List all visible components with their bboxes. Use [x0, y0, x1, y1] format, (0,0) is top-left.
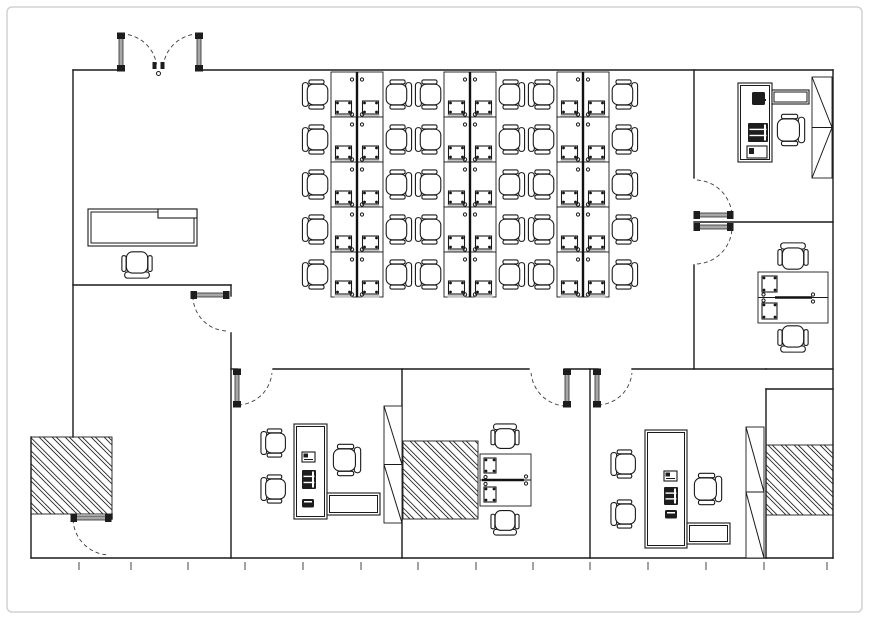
- chair-armrest: [503, 195, 518, 199]
- chair-seat: [612, 219, 633, 240]
- corner-dot: [476, 102, 479, 105]
- corner-dot: [336, 237, 339, 240]
- corner-dot: [375, 147, 378, 150]
- chair-seat: [420, 129, 441, 150]
- corner-dot: [375, 156, 378, 159]
- door-stop: [157, 72, 161, 76]
- chair-armrest: [267, 429, 282, 433]
- corner-dot: [589, 192, 592, 195]
- corner-dot: [348, 282, 351, 285]
- chair-seat: [307, 264, 328, 285]
- chair-seat: [386, 264, 407, 285]
- corner-dot: [488, 111, 491, 114]
- chair-armrest: [503, 285, 518, 289]
- corner-dot: [493, 499, 496, 502]
- task-chair: [612, 170, 637, 199]
- corner-dot: [449, 282, 452, 285]
- task-chair: [778, 326, 808, 352]
- paper-tray-detail: [749, 148, 754, 154]
- door-latch: [153, 62, 157, 69]
- chair-seat: [612, 264, 633, 285]
- corner-dot: [363, 147, 366, 150]
- phone-detail: [667, 512, 675, 514]
- corner-dot: [449, 102, 452, 105]
- chair-seat: [499, 219, 520, 240]
- corner-dot: [574, 282, 577, 285]
- chair-armrest: [535, 260, 550, 264]
- corner-dot: [375, 291, 378, 294]
- chair-seat: [266, 433, 286, 453]
- chair-armrest: [390, 105, 405, 109]
- door-leaf: [565, 370, 569, 406]
- corner-dot: [336, 102, 339, 105]
- chair-armrest: [617, 500, 632, 504]
- entry-door-center-hardware: [153, 62, 165, 76]
- corner-dot: [562, 111, 565, 114]
- hatch-line: [104, 437, 181, 514]
- corner-dot: [562, 147, 565, 150]
- task-chair: [499, 170, 524, 199]
- corner-dot: [601, 147, 604, 150]
- desk-edge-shade: [362, 295, 380, 298]
- chair-armrest: [503, 150, 518, 154]
- corner-dot: [601, 111, 604, 114]
- corner-dot: [488, 246, 491, 249]
- chair-armrest: [535, 170, 550, 174]
- corner-dot: [449, 111, 452, 114]
- chair-armrest: [535, 150, 550, 154]
- chair-seat: [533, 129, 554, 150]
- corner-dot: [574, 192, 577, 195]
- corner-dot: [348, 102, 351, 105]
- corner-dot: [589, 282, 592, 285]
- task-chair: [528, 170, 553, 199]
- door-swing-arc: [696, 180, 732, 214]
- chair-armrest: [503, 105, 518, 109]
- corner-dot: [574, 147, 577, 150]
- corner-dot: [363, 282, 366, 285]
- computer-detail: [750, 129, 767, 130]
- chair-armrest: [535, 285, 550, 289]
- desk-edge-shade: [448, 295, 466, 298]
- chair-armrest: [617, 524, 632, 528]
- hatch-line: [121, 437, 198, 514]
- corner-dot: [449, 192, 452, 195]
- door-hinge-cap: [195, 65, 203, 72]
- chair-armrest: [422, 150, 437, 154]
- corner-dot: [562, 156, 565, 159]
- chair-armrest: [309, 125, 324, 129]
- corner-dot: [774, 304, 777, 307]
- chair-seat: [307, 219, 328, 240]
- office-ne: [738, 83, 809, 162]
- chair-armrest: [148, 256, 152, 272]
- task-chair: [302, 260, 327, 289]
- reception-chair: [122, 252, 152, 278]
- executive-office-c: [611, 430, 730, 548]
- chair-seat: [420, 174, 441, 195]
- chair-seat: [307, 84, 328, 105]
- corner-dot: [488, 282, 491, 285]
- sw-closet-door: [71, 514, 112, 555]
- chair-armrest: [309, 240, 324, 244]
- chair-armrest: [778, 250, 782, 266]
- door-hinge-cap: [233, 401, 241, 408]
- task-chair: [415, 260, 440, 289]
- door-latch: [161, 62, 165, 69]
- corner-dot: [449, 156, 452, 159]
- task-chair: [386, 170, 411, 199]
- door-hinge-cap: [71, 514, 78, 522]
- door-leaf: [197, 34, 201, 70]
- chair-armrest: [617, 474, 632, 478]
- workstation-bank-2: [415, 72, 524, 297]
- corner-dot: [601, 102, 604, 105]
- chair-armrest: [309, 150, 324, 154]
- corner-dot: [375, 246, 378, 249]
- door-hinge-cap: [233, 369, 241, 376]
- chair-armrest: [503, 80, 518, 84]
- corner-dot: [375, 237, 378, 240]
- office-b-door: [531, 369, 571, 408]
- folder-tab: [666, 473, 671, 477]
- chair-seat: [533, 264, 554, 285]
- corner-dot: [562, 102, 565, 105]
- chair-armrest: [267, 499, 282, 503]
- corner-dot: [336, 192, 339, 195]
- corner-dot: [763, 316, 766, 319]
- corner-dot: [493, 459, 496, 462]
- corner-dot: [774, 316, 777, 319]
- corner-dot: [336, 291, 339, 294]
- task-chair: [612, 260, 637, 289]
- door-hinge-cap: [563, 369, 571, 376]
- chair-seat: [499, 129, 520, 150]
- door-leaf: [595, 370, 599, 406]
- chair-armrest: [422, 105, 437, 109]
- chair-armrest: [422, 240, 437, 244]
- office-a-door: [233, 369, 272, 408]
- task-chair: [612, 125, 637, 154]
- door-hinge-cap: [593, 369, 601, 376]
- executive-chair: [777, 114, 804, 145]
- door-hinge-cap: [694, 223, 701, 231]
- phone-icon: [302, 499, 314, 508]
- chair-armrest: [122, 256, 126, 272]
- task-chair: [415, 125, 440, 154]
- door-swing-arc: [531, 373, 566, 406]
- guest-chair: [261, 429, 285, 457]
- corner-dot: [375, 111, 378, 114]
- chair-armrest: [804, 250, 808, 266]
- chair-armrest: [309, 215, 324, 219]
- chair-seat: [782, 248, 803, 269]
- door-swing-arc: [598, 373, 632, 405]
- chair-seat: [694, 478, 716, 500]
- task-chair: [302, 80, 327, 109]
- task-chair: [415, 170, 440, 199]
- executive-chair: [333, 444, 360, 475]
- chair-armrest: [781, 114, 797, 118]
- corner-dot: [488, 102, 491, 105]
- chair-armrest: [616, 260, 631, 264]
- door-swing-arc: [73, 519, 107, 555]
- guest-chair: [261, 475, 285, 503]
- door-swing-arc: [163, 34, 199, 64]
- corner-dot: [485, 470, 488, 473]
- folder-tab: [304, 454, 309, 458]
- chair-seat: [612, 174, 633, 195]
- corner-dot: [562, 237, 565, 240]
- corner-dot: [449, 291, 452, 294]
- chair-seat: [307, 129, 328, 150]
- corner-dot: [488, 147, 491, 150]
- chair-armrest: [616, 125, 631, 129]
- door-hinge-cap: [727, 223, 734, 231]
- corner-dot: [763, 304, 766, 307]
- chair-seat: [386, 129, 407, 150]
- corner-dot: [348, 147, 351, 150]
- corner-dot: [485, 499, 488, 502]
- door-leaf: [235, 370, 239, 406]
- door-leaf: [695, 225, 732, 229]
- desk-edge-shade: [335, 295, 353, 298]
- chair-armrest: [390, 285, 405, 289]
- corner-dot: [348, 192, 351, 195]
- chair-seat: [386, 219, 407, 240]
- task-chair: [302, 170, 327, 199]
- task-chair: [499, 125, 524, 154]
- chair-armrest: [390, 195, 405, 199]
- corner-dot: [363, 102, 366, 105]
- task-chair: [528, 260, 553, 289]
- chair-armrest: [616, 170, 631, 174]
- corner-dot: [493, 488, 496, 491]
- chair-armrest: [491, 514, 495, 529]
- task-chair: [386, 125, 411, 154]
- door-hinge-cap: [195, 33, 203, 40]
- chair-seat: [612, 129, 633, 150]
- cabinet-office-a: [384, 406, 402, 523]
- corner-dot: [449, 147, 452, 150]
- chair-seat: [333, 449, 355, 471]
- hatch-line: [0, 437, 25, 514]
- reception-door: [191, 291, 230, 331]
- floor-plan-canvas: [0, 0, 869, 619]
- hatch-line: [837, 445, 869, 515]
- chair-armrest: [422, 215, 437, 219]
- door-swing-arc: [193, 296, 227, 331]
- chair-armrest: [309, 170, 324, 174]
- chair-armrest: [390, 240, 405, 244]
- task-chair: [528, 125, 553, 154]
- door-leaf: [72, 516, 110, 520]
- chair-armrest: [515, 430, 519, 445]
- chair-seat: [777, 119, 799, 141]
- computer-detail: [312, 472, 314, 488]
- chair-armrest: [804, 330, 808, 346]
- corner-dot: [774, 289, 777, 292]
- chair-armrest: [390, 170, 405, 174]
- hatched-area-southwest: [0, 437, 198, 514]
- chair-armrest: [309, 285, 324, 289]
- corner-dot: [601, 237, 604, 240]
- corner-dot: [476, 147, 479, 150]
- door-hinge-cap: [223, 291, 230, 299]
- chair-seat: [495, 511, 515, 531]
- corner-dot: [574, 237, 577, 240]
- corner-dot: [375, 102, 378, 105]
- task-chair: [528, 215, 553, 244]
- corner-dot: [375, 201, 378, 204]
- corner-dot: [562, 282, 565, 285]
- computer-detail: [764, 125, 766, 141]
- corner-dot: [476, 282, 479, 285]
- corner-dot: [461, 102, 464, 105]
- workstation-bank-1: [302, 72, 411, 297]
- corner-dot: [461, 192, 464, 195]
- chair-seat: [307, 174, 328, 195]
- chair-seat: [266, 479, 286, 499]
- corner-dot: [449, 201, 452, 204]
- task-chair: [499, 215, 524, 244]
- corner-dot: [562, 192, 565, 195]
- corner-dot: [461, 282, 464, 285]
- task-chair: [415, 80, 440, 109]
- chair-seat: [612, 84, 633, 105]
- hatch-line: [117, 437, 194, 514]
- corner-dot: [488, 201, 491, 204]
- chair-armrest: [535, 125, 550, 129]
- corner-dot: [476, 237, 479, 240]
- corner-dot: [774, 277, 777, 280]
- task-chair: [386, 215, 411, 244]
- task-chair: [499, 260, 524, 289]
- chair-armrest: [535, 80, 550, 84]
- chair-armrest: [616, 80, 631, 84]
- task-chair: [386, 260, 411, 289]
- chair-armrest: [616, 285, 631, 289]
- door-hinge-cap: [694, 211, 701, 219]
- task-chair: [302, 125, 327, 154]
- corner-dot: [375, 282, 378, 285]
- chair-armrest: [535, 195, 550, 199]
- side-table: [687, 523, 730, 544]
- chair-armrest: [535, 215, 550, 219]
- corner-dot: [574, 102, 577, 105]
- corner-dot: [461, 147, 464, 150]
- chair-armrest: [309, 105, 324, 109]
- office-ne-door: [694, 180, 734, 219]
- corner-dot: [601, 282, 604, 285]
- guest-chair: [611, 500, 635, 528]
- corner-dot: [336, 246, 339, 249]
- corner-dot: [461, 237, 464, 240]
- corner-dot: [363, 237, 366, 240]
- corner-dot: [562, 291, 565, 294]
- hatch-line: [833, 445, 869, 515]
- chair-armrest: [616, 215, 631, 219]
- corner-dot: [601, 192, 604, 195]
- corner-dot: [336, 201, 339, 204]
- corner-dot: [488, 192, 491, 195]
- chair-armrest: [616, 105, 631, 109]
- corner-dot: [485, 459, 488, 462]
- corner-dot: [601, 201, 604, 204]
- chair-seat: [386, 174, 407, 195]
- chair-armrest: [535, 240, 550, 244]
- door-swing-arc: [121, 34, 157, 64]
- corner-dot: [485, 488, 488, 491]
- phone-detail: [304, 501, 312, 503]
- corner-dot: [449, 237, 452, 240]
- chair-seat: [499, 264, 520, 285]
- chair-armrest: [535, 105, 550, 109]
- chair-armrest: [390, 80, 405, 84]
- corner-dot: [589, 237, 592, 240]
- chair-armrest: [390, 150, 405, 154]
- south-wall-ruler: [79, 562, 827, 570]
- door-hinge-cap: [727, 211, 734, 219]
- corner-dot: [488, 291, 491, 294]
- door-leaf: [695, 213, 732, 217]
- reception-area: [88, 209, 197, 278]
- hatch-line: [0, 437, 29, 514]
- corner-dot: [589, 102, 592, 105]
- chair-armrest: [698, 500, 714, 504]
- corner-dot: [601, 291, 604, 294]
- corner-dot: [763, 277, 766, 280]
- chair-armrest: [778, 330, 782, 346]
- corner-dot: [488, 237, 491, 240]
- chair-armrest: [422, 80, 437, 84]
- chair-armrest: [309, 80, 324, 84]
- door-swing-arc: [696, 230, 732, 264]
- phone-icon: [665, 510, 677, 519]
- chair-armrest: [422, 260, 437, 264]
- task-chair: [499, 80, 524, 109]
- corner-dot: [562, 246, 565, 249]
- phone-handle: [754, 99, 766, 101]
- door-hinge-cap: [117, 33, 125, 40]
- chair-armrest: [422, 125, 437, 129]
- chair-armrest: [337, 444, 353, 448]
- corner-dot: [449, 246, 452, 249]
- chair-armrest: [515, 514, 519, 529]
- executive-office-a: [261, 424, 380, 519]
- chair-seat: [499, 174, 520, 195]
- cabinet-office-c: [746, 427, 764, 558]
- chair-armrest: [337, 471, 353, 475]
- chair-armrest: [503, 240, 518, 244]
- shared-desk-mid-east: [758, 243, 828, 352]
- phone-icon: [752, 92, 765, 105]
- chair-armrest: [422, 285, 437, 289]
- chair-armrest: [616, 150, 631, 154]
- entry-door-left: [117, 33, 157, 72]
- chair-armrest: [781, 141, 797, 145]
- chair-armrest: [616, 240, 631, 244]
- corner-dot: [562, 201, 565, 204]
- door-hinge-cap: [593, 401, 601, 408]
- corner-dot: [348, 237, 351, 240]
- chair-armrest: [698, 473, 714, 477]
- corner-dot: [336, 111, 339, 114]
- corner-dot: [375, 192, 378, 195]
- door-hinge-cap: [105, 514, 112, 522]
- door-swing-arc: [238, 373, 272, 405]
- chair-seat: [782, 326, 803, 347]
